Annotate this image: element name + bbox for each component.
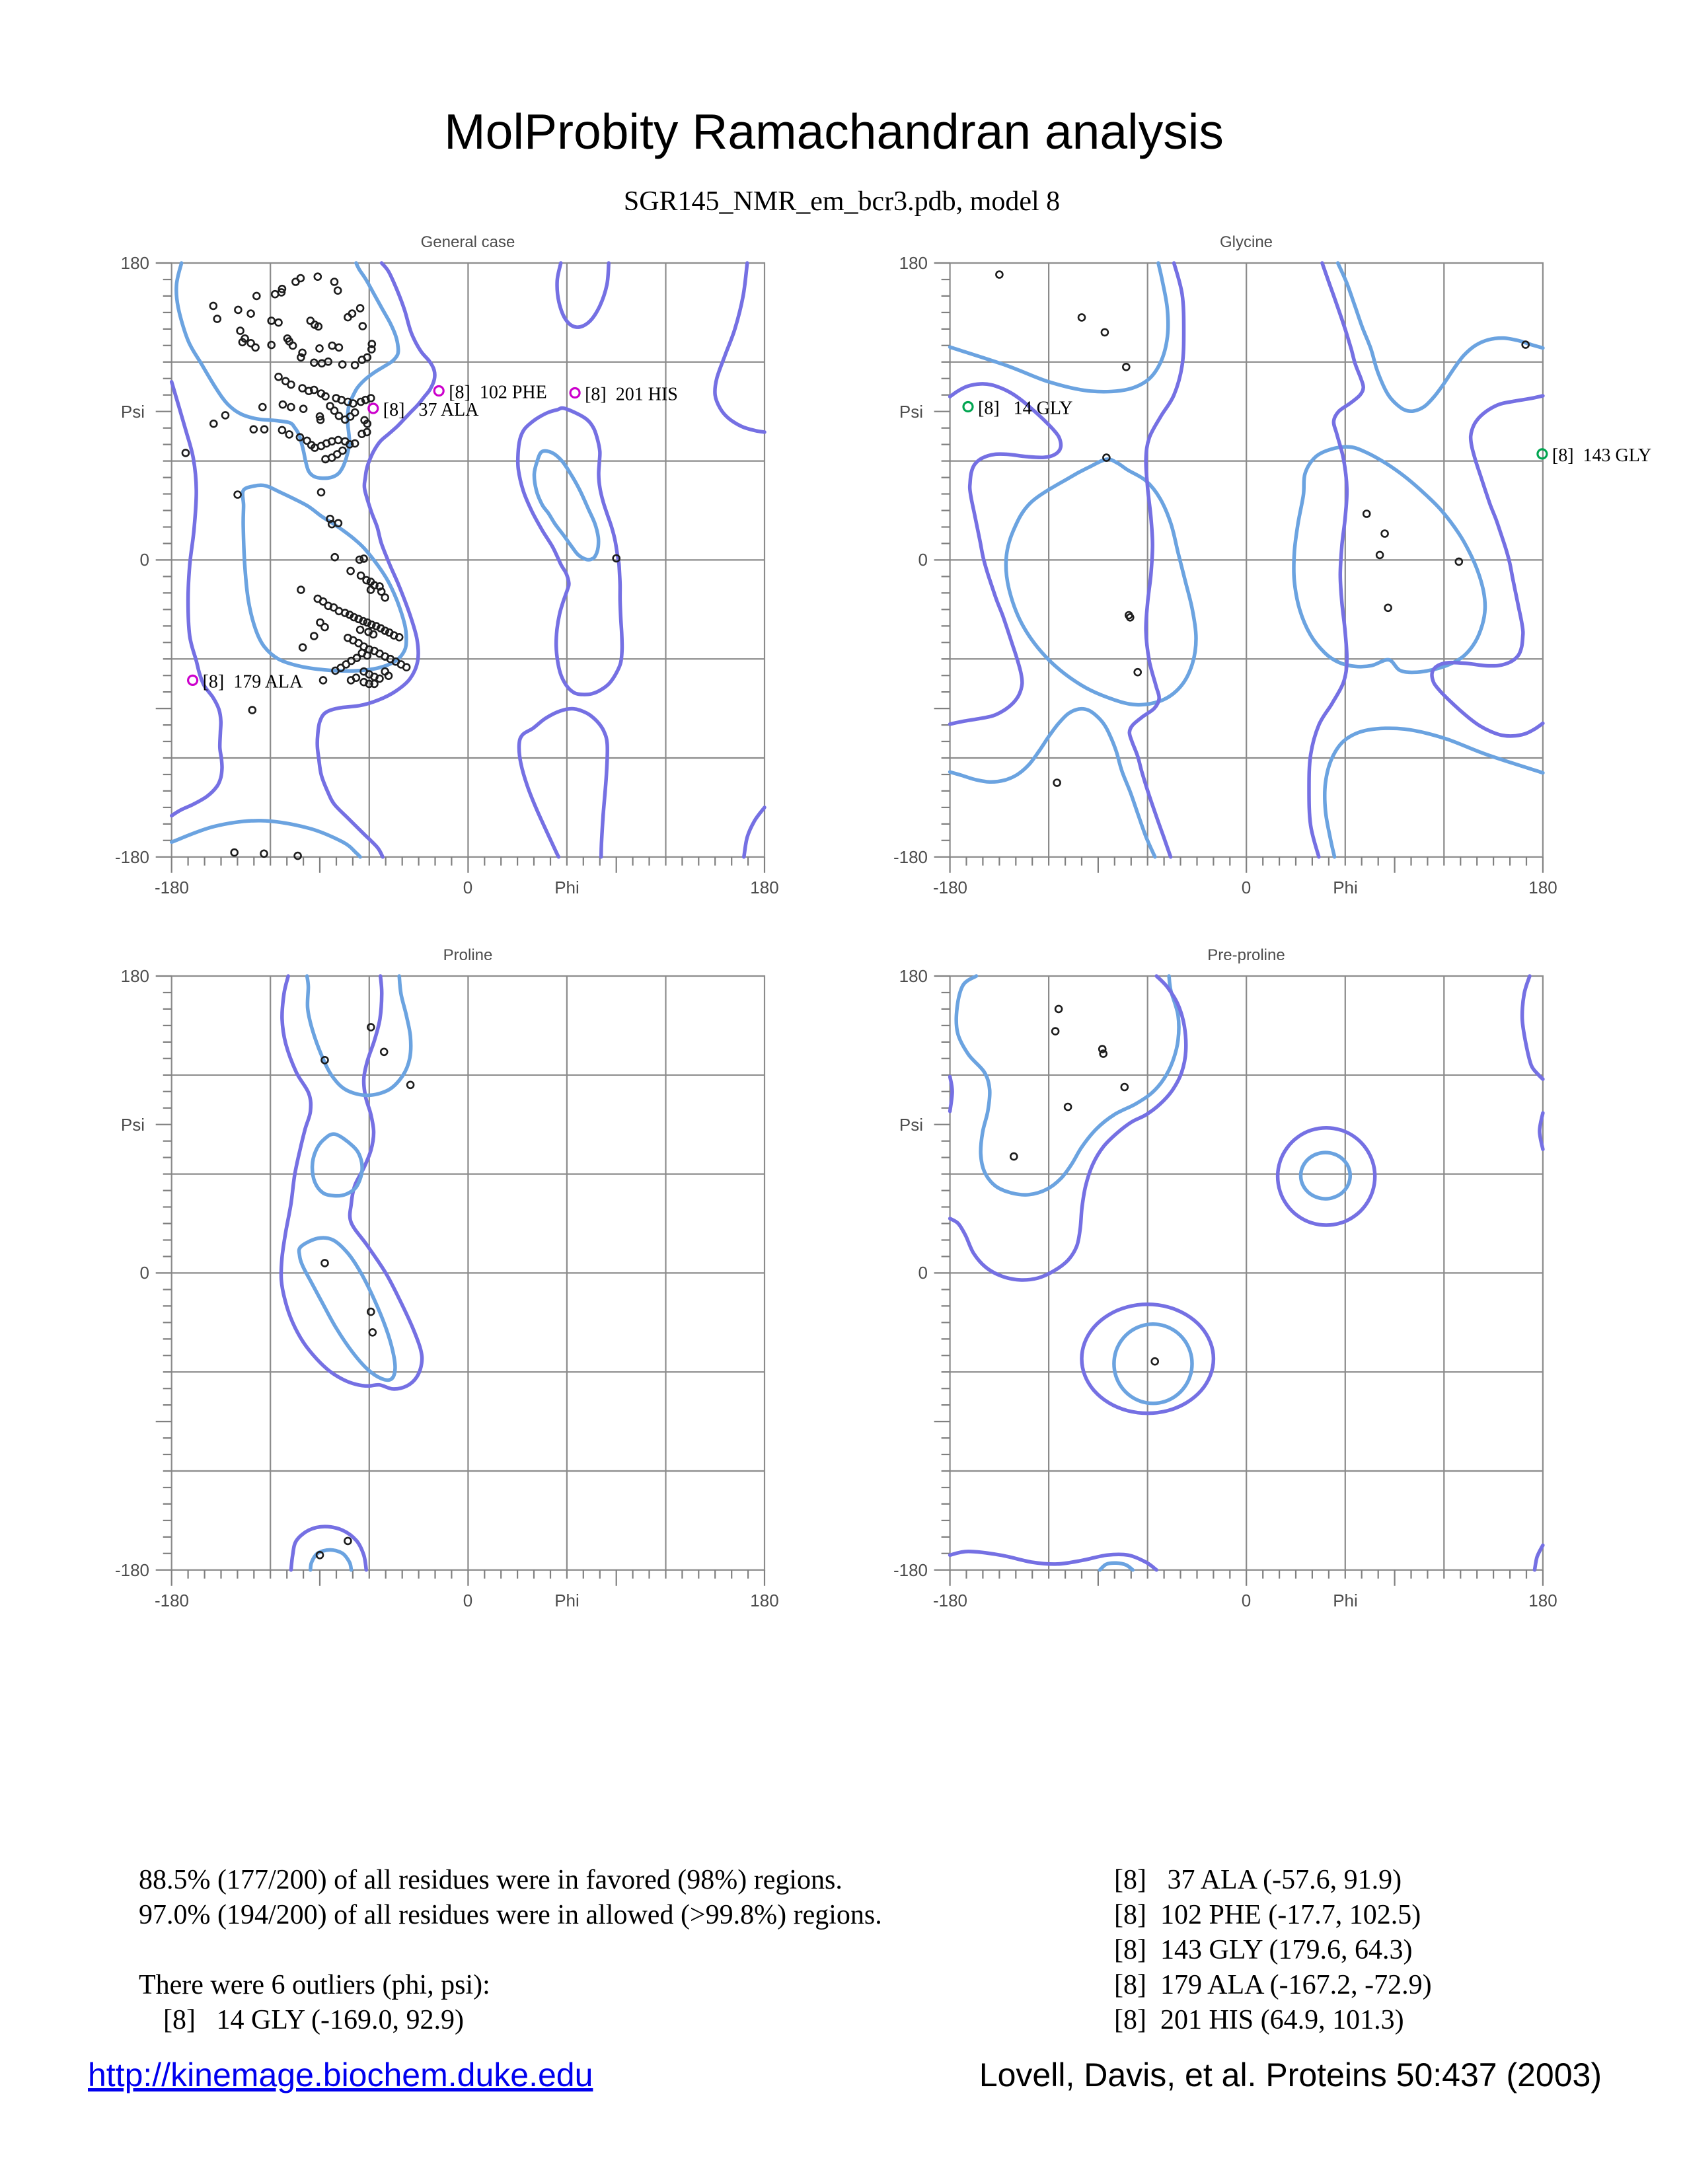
- svg-text:-180: -180: [155, 878, 189, 897]
- svg-text:[8] 143 GLY (179.6, 64.3): [8] 143 GLY (179.6, 64.3): [1114, 1935, 1413, 1965]
- svg-text:Phi: Phi: [1333, 1591, 1358, 1610]
- svg-text:[8] 201 HIS (64.9, 101.3): [8] 201 HIS (64.9, 101.3): [1114, 2005, 1404, 2035]
- svg-text:0: 0: [463, 878, 472, 897]
- svg-text:180: 180: [899, 966, 928, 986]
- svg-text:180: 180: [121, 253, 149, 273]
- svg-text:-180: -180: [893, 847, 928, 867]
- svg-text:Psi: Psi: [899, 1115, 923, 1135]
- svg-text:Lovell, Davis, et al. Proteins: Lovell, Davis, et al. Proteins 50:437 (2…: [979, 2056, 1602, 2093]
- svg-text:[8] 143 GLY: [8] 143 GLY: [1552, 445, 1651, 466]
- svg-text:[8] 102 PHE: [8] 102 PHE: [449, 383, 547, 403]
- svg-text:Phi: Phi: [1333, 878, 1358, 897]
- svg-text:-180: -180: [155, 1591, 189, 1610]
- svg-text:180: 180: [750, 878, 778, 897]
- svg-text:Phi: Phi: [554, 1591, 580, 1610]
- svg-text:180: 180: [1528, 878, 1557, 897]
- svg-text:-180: -180: [115, 1560, 149, 1580]
- svg-text:[8] 102 PHE (-17.7, 102.5): [8] 102 PHE (-17.7, 102.5): [1114, 1900, 1421, 1930]
- svg-text:0: 0: [918, 1263, 928, 1283]
- svg-text:Psi: Psi: [121, 1115, 145, 1135]
- svg-text:Proline: Proline: [443, 946, 493, 964]
- svg-text:97.0% (194/200) of all residue: 97.0% (194/200) of all residues were in …: [139, 1900, 882, 1930]
- svg-text:0: 0: [140, 550, 149, 570]
- svg-text:Psi: Psi: [899, 402, 923, 422]
- svg-text:180: 180: [750, 1591, 778, 1610]
- svg-text:Psi: Psi: [121, 402, 145, 422]
- svg-text:-180: -180: [115, 847, 149, 867]
- svg-text:Pre-proline: Pre-proline: [1207, 946, 1285, 964]
- svg-text:There were 6 outliers (phi, ps: There were 6 outliers (phi, psi):: [139, 1970, 490, 2000]
- svg-text:0: 0: [140, 1263, 149, 1283]
- svg-text:[8] 37 ALA: [8] 37 ALA: [383, 400, 479, 420]
- svg-text:http://kinemage.biochem.duke.e: http://kinemage.biochem.duke.edu: [88, 2056, 593, 2093]
- svg-text:180: 180: [899, 253, 928, 273]
- svg-text:General case: General case: [421, 233, 515, 251]
- svg-text:MolProbity Ramachandran analys: MolProbity Ramachandran analysis: [444, 104, 1224, 159]
- svg-text:-180: -180: [893, 1560, 928, 1580]
- svg-text:0: 0: [1242, 878, 1251, 897]
- svg-text:88.5% (177/200) of all residue: 88.5% (177/200) of all residues were in …: [139, 1865, 842, 1895]
- svg-text:[8] 14 GLY (-169.0, 92.9): [8] 14 GLY (-169.0, 92.9): [163, 2005, 464, 2035]
- svg-text:[8] 37 ALA (-57.6, 91.9): [8] 37 ALA (-57.6, 91.9): [1114, 1865, 1402, 1895]
- svg-text:-180: -180: [933, 1591, 967, 1610]
- svg-text:Glycine: Glycine: [1220, 233, 1273, 251]
- svg-text:[8] 14 GLY: [8] 14 GLY: [978, 398, 1072, 419]
- svg-text:0: 0: [918, 550, 928, 570]
- svg-text:[8] 201 HIS: [8] 201 HIS: [585, 385, 678, 405]
- svg-text:0: 0: [463, 1591, 472, 1610]
- svg-text:180: 180: [121, 966, 149, 986]
- svg-text:SGR145_NMR_em_bcr3.pdb, model: SGR145_NMR_em_bcr3.pdb, model 8: [624, 186, 1060, 217]
- svg-text:[8] 179 ALA (-167.2, -72.9): [8] 179 ALA (-167.2, -72.9): [1114, 1970, 1432, 2000]
- svg-text:-180: -180: [933, 878, 967, 897]
- svg-text:Phi: Phi: [554, 878, 580, 897]
- svg-text:[8] 179 ALA: [8] 179 ALA: [203, 671, 303, 692]
- svg-text:180: 180: [1528, 1591, 1557, 1610]
- svg-text:0: 0: [1242, 1591, 1251, 1610]
